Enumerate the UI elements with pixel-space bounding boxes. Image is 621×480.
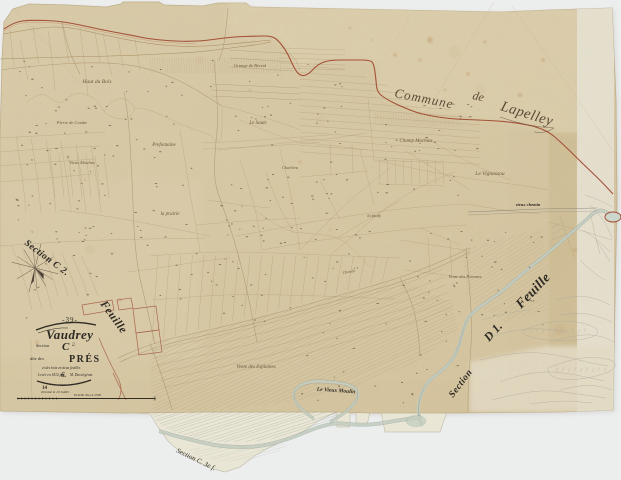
svg-text:Vaudrey: Vaudrey xyxy=(46,327,94,342)
svg-text:la fauly: la fauly xyxy=(367,213,381,218)
svg-text:Champ Machins: Champ Machins xyxy=(400,139,433,144)
svg-text:M. Duval géom.: M. Duval géom. xyxy=(69,373,93,377)
svg-text:dite des: dite des xyxy=(30,356,44,361)
svg-text:vieux chemin: vieux chemin xyxy=(516,202,541,207)
svg-text:Le Vignassou: Le Vignassou xyxy=(474,171,505,177)
svg-text:Vente des Pommes: Vente des Pommes xyxy=(448,274,481,279)
svg-text:Pierre de Combe: Pierre de Combe xyxy=(56,120,88,125)
svg-text:PRÉS: PRÉS xyxy=(69,353,101,365)
svg-text:Vieux Moulins: Vieux Moulins xyxy=(69,160,95,165)
svg-text:C: C xyxy=(62,341,70,353)
svg-text:Grange de Berval: Grange de Berval xyxy=(234,63,267,68)
svg-text:Charlieu: Charlieu xyxy=(282,165,299,170)
svg-text:Echelle d'un à 2500: Echelle d'un à 2500 xyxy=(73,393,101,397)
svg-text:Haut du Bois: Haut du Bois xyxy=(81,79,111,85)
svg-text:14: 14 xyxy=(42,386,48,391)
svg-text:Section: Section xyxy=(36,343,50,348)
svg-text:2.: 2. xyxy=(72,343,76,348)
svg-text:et des bois en deux feuilles: et des bois en deux feuilles xyxy=(42,366,81,370)
svg-text:Le Saule: Le Saule xyxy=(248,121,267,126)
svg-text:6.: 6. xyxy=(61,371,67,379)
svg-text:Prefontaine: Prefontaine xyxy=(151,143,176,148)
svg-text:Vente des Esplantes: Vente des Esplantes xyxy=(236,365,275,370)
svg-text:la prairie: la prairie xyxy=(160,212,180,217)
